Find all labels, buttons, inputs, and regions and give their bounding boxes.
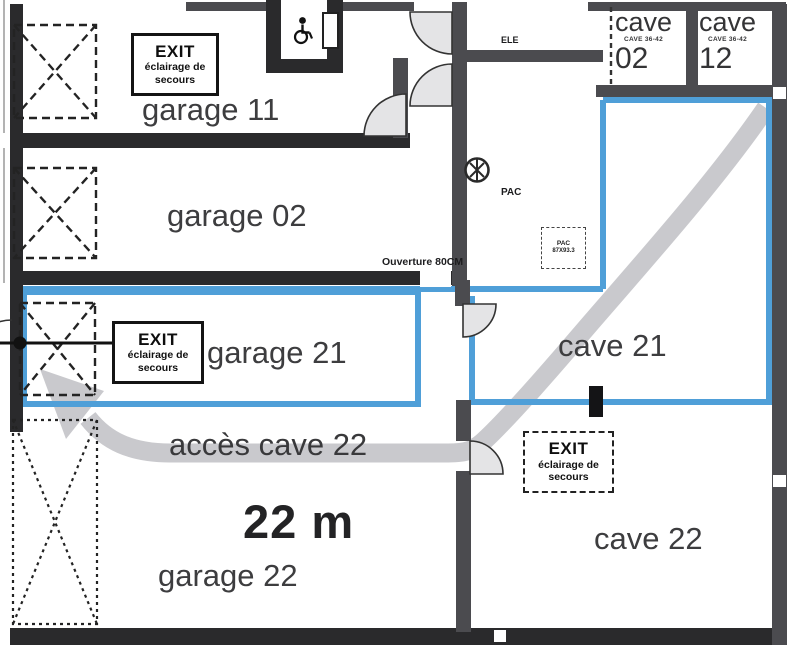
exit-leader-dot [14,337,27,350]
bottom-outer-wall [10,628,786,645]
floor-plan-page: garage 11 garage 02 garage 21 garage 22 … [0,0,787,648]
label-pac: PAC [501,188,521,198]
exit-sign-cave-22: EXIT éclairage de secours [523,431,614,493]
exit-subtitle-2: secours [138,362,178,375]
cave02-word: cave [615,9,672,36]
exit-subtitle-1: éclairage de [538,459,599,472]
room-label-cave-22: cave 22 [594,523,703,554]
garage11-garage02-wall [10,133,410,148]
pac-unit-box: PAC 87X93.3 [541,227,586,269]
exit-sign-garage-21: EXIT éclairage de secours [112,321,204,384]
room-label-garage-02: garage 02 [167,200,307,231]
garage22-cave22-wall [456,400,471,441]
exit-title: EXIT [138,331,178,350]
crossed-box-garage22 [13,420,97,624]
door-swing-garage11 [364,94,406,136]
exit-title: EXIT [155,43,195,62]
elevator [295,13,338,48]
center-wall [452,2,467,286]
annotation-acces-cave-22: accès cave 22 [169,429,367,460]
door-swing-corridor-2 [410,64,452,106]
wheelchair-icon [295,17,312,43]
elevator-door [323,13,338,48]
wall-notches [494,87,786,642]
label-ele: ELE [501,36,519,45]
crossed-box-garage11 [14,25,96,118]
pac-unit-title: PAC [557,240,570,248]
exit-sign-garage-11: EXIT éclairage de secours [131,33,219,96]
exit-subtitle-1: éclairage de [145,61,206,74]
room-label-cave-21: cave 21 [558,330,667,361]
room-label-garage-11: garage 11 [142,94,279,125]
door-swing-cave21 [463,304,496,337]
ele-room-wall [459,50,603,62]
left-outer-wall [10,4,23,432]
wall-opening-80cm [420,269,451,287]
room-label-cave-12: cave CAVE 36-42 12 [699,9,756,74]
light-fixture-icon [466,159,489,182]
exit-subtitle-2: secours [155,74,195,87]
cave12-word: cave [699,9,756,36]
garage02-garage21-wall [10,271,453,285]
exit-subtitle-1: éclairage de [128,349,189,362]
exit-title: EXIT [549,440,589,459]
cave02-number: 02 [615,44,672,74]
room-label-cave-02: cave CAVE 36-42 02 [615,9,672,74]
room-label-garage-21: garage 21 [207,337,347,368]
pac-unit-dimensions: 87X93.3 [552,248,574,256]
room-label-garage-22: garage 22 [158,560,298,591]
cave12-number: 12 [699,44,756,74]
annotation-distance-22m: 22 m [243,498,354,545]
annotation-ouverture-80cm: Ouverture 80CM [382,257,463,268]
crossed-box-garage02 [14,168,96,258]
exit-subtitle-2: secours [548,471,588,484]
right-outer-wall [772,4,787,645]
cave02-cave12-wall [686,4,698,87]
cave21-pillar [589,386,603,417]
door-swing-corridor-1 [410,12,452,54]
door-swing-cave22 [470,441,503,474]
